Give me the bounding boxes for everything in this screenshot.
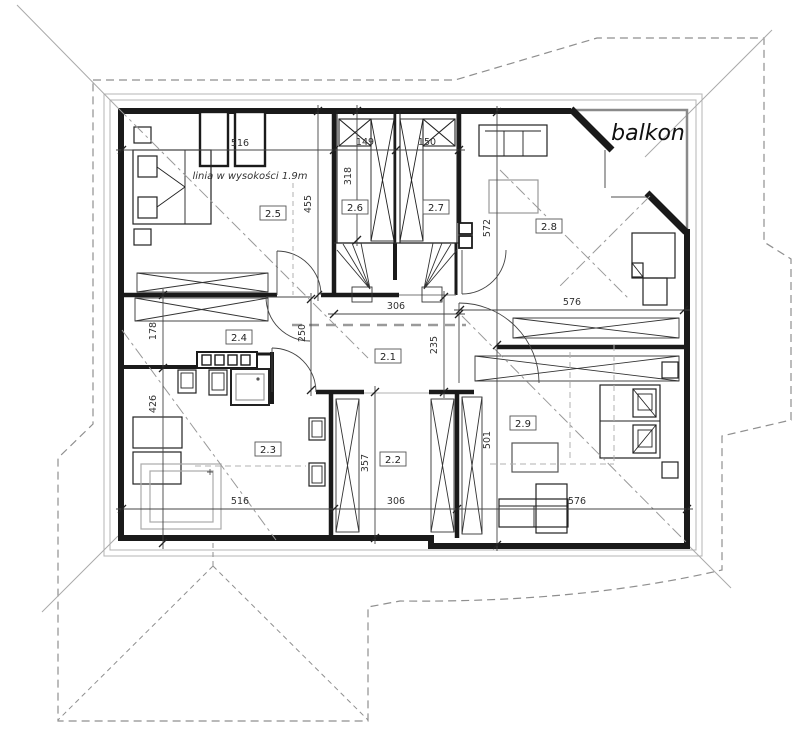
dim-318: 318 [343, 167, 354, 185]
dim-572: 572 [482, 219, 493, 237]
svg-text:2.4: 2.4 [231, 333, 247, 344]
dim-306-bottom: 306 [387, 496, 405, 507]
svg-text:2.3: 2.3 [260, 445, 276, 456]
dim-455: 455 [303, 195, 314, 213]
svg-text:2.2: 2.2 [385, 455, 401, 466]
room-label-2.2: 2.2 [380, 452, 406, 466]
height-line-label: linia w wysokości 1.9m [193, 170, 308, 182]
dim-306-stairs: 306 [387, 301, 405, 312]
svg-text:2.1: 2.1 [380, 352, 396, 363]
dim-576-right: 576 [563, 297, 581, 308]
duct-box [459, 223, 472, 234]
dim-501: 501 [482, 431, 493, 449]
room-label-2.3: 2.3 [255, 442, 281, 456]
svg-text:2.6: 2.6 [347, 203, 363, 214]
dim-150: 150 [418, 137, 436, 148]
svg-text:2.8: 2.8 [541, 222, 557, 233]
dim-516-top: 516 [231, 138, 249, 149]
dim-250: 250 [297, 324, 308, 342]
room-label-2.9: 2.9 [510, 416, 536, 430]
room-label-2.8: 2.8 [536, 219, 562, 233]
room-label-2.6: 2.6 [342, 200, 368, 214]
room-label-2.4: 2.4 [226, 330, 252, 344]
room-label-2.5: 2.5 [260, 206, 286, 220]
svg-text:2.9: 2.9 [515, 419, 531, 430]
floor-plan-drawing: 516 149 150 318 455 572 576 178 426 250 … [0, 0, 800, 739]
dim-149: 149 [356, 137, 374, 148]
duct-box [459, 236, 472, 248]
balkon-label: balkon [611, 121, 685, 146]
floor-plan-sheet: 516 149 150 318 455 572 576 178 426 250 … [0, 0, 800, 739]
dim-426: 426 [148, 395, 159, 413]
svg-text:2.7: 2.7 [428, 203, 444, 214]
dim-576-bottom: 576 [568, 496, 586, 507]
svg-text:2.5: 2.5 [265, 209, 281, 220]
dim-357: 357 [360, 454, 371, 472]
dim-178: 178 [148, 322, 159, 340]
room-label-2.7: 2.7 [423, 200, 449, 214]
dim-235: 235 [429, 336, 440, 354]
room-label-2.1: 2.1 [375, 349, 401, 363]
dim-516-bottom: 516 [231, 496, 249, 507]
chimney-flue [200, 112, 228, 166]
